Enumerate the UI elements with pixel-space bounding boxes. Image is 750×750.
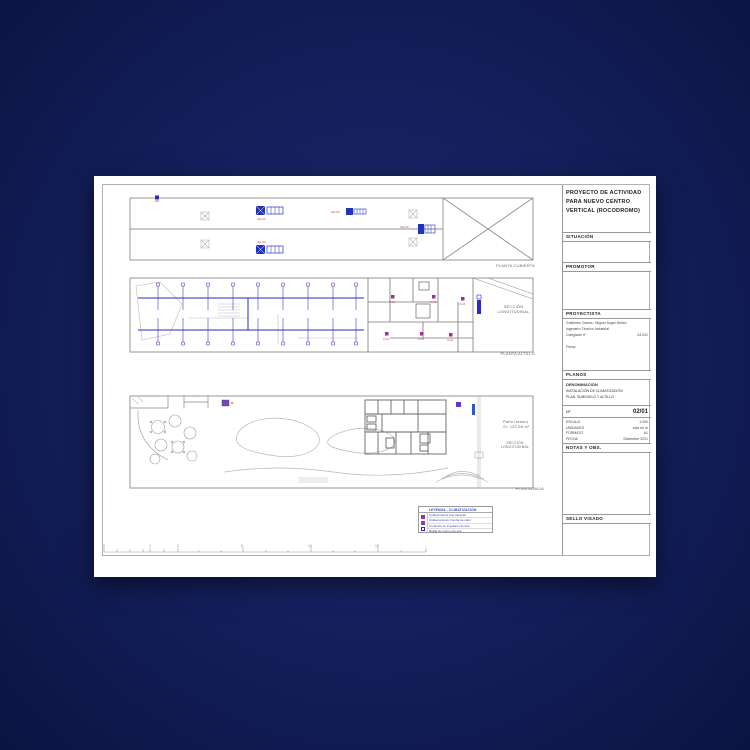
duct-network: [138, 283, 364, 345]
climate-unit: [222, 400, 233, 406]
fecha-label: FECHA: [566, 437, 578, 443]
spec-table: ESCALA 1:200 UNIDADES cota en m FORMATO …: [563, 418, 651, 444]
locker-rooms: [365, 400, 446, 454]
colegiado-value: 04.031: [637, 333, 648, 339]
cassette-unit-icon: [421, 515, 425, 519]
graphic-scale-bar: 0 1 2 5 10 15: [103, 544, 433, 556]
section-marker-label-2: SECCIÓNLONGITUDINAL: [490, 441, 540, 450]
scale-label: 5: [241, 544, 243, 548]
scale-label: 1: [149, 544, 151, 548]
denominacion-label: DENOMINACIÓN: [566, 381, 648, 388]
scale-label: 15: [375, 544, 379, 548]
sello-body: [563, 524, 651, 555]
exterior-unit-icon: [421, 521, 425, 525]
svg-text:UI-06: UI-06: [447, 339, 454, 342]
unit-label: UE-02: [331, 210, 340, 214]
section2-line2: LONGITUDINAL: [501, 445, 529, 449]
unit-label: UE-03: [400, 225, 409, 229]
section-marker-label: SECCIÓNLONGITUDINAL: [486, 304, 541, 314]
scale-label: 0: [103, 544, 105, 548]
firma-label: Firma:: [566, 345, 648, 351]
roof-outline: [130, 198, 533, 260]
cafe-area: [130, 396, 208, 464]
title-block: PROYECTO DE ACTIVIDAD PARA NUEVO CENTRO …: [562, 185, 651, 555]
mezzanine-outline: [130, 278, 533, 352]
numero-value: 02/01: [633, 409, 648, 415]
duct-icon: [421, 527, 425, 531]
scale-label: 10: [308, 544, 312, 548]
scale-label: 2: [177, 544, 179, 548]
roof-plan-caption: PLANTA CUBIERTA: [433, 263, 535, 268]
patio-line2: S= 122,56 m²: [503, 424, 530, 429]
climate-legend: LEYENDA - CLIMATIZACIÓN Unidad interior …: [418, 506, 493, 533]
sello-header: SELLO VISADO: [563, 515, 651, 524]
svg-text:UI-03: UI-03: [459, 303, 466, 306]
project-title: PROYECTO DE ACTIVIDAD PARA NUEVO CENTRO …: [563, 185, 651, 233]
riser-unit: [477, 295, 481, 314]
proyectista-header: PROYECTISTA: [563, 310, 651, 319]
unit-label: UE-01: [257, 217, 266, 221]
mezzanine-plan-drawing: UI-01 UI-02 UI-03 UI-04 UI-05 UI-06: [128, 274, 535, 356]
situacion-header: SITUACIÓN: [563, 233, 651, 242]
colegiado-label: Colegiado nº: [566, 333, 586, 339]
stair-sketch: [298, 478, 328, 482]
legend-symbol-column: [419, 513, 428, 533]
blue-equipment: [456, 402, 475, 415]
climbing-boulders: [224, 418, 488, 482]
svg-text:UI-04: UI-04: [383, 338, 390, 341]
plan-sheet: UE-01 UE-02 UE-03 UE-04: [94, 176, 656, 577]
section-line2: LONGITUDINAL: [498, 309, 530, 314]
legend-rows: Unidad interior tipo cassette Unidad ext…: [428, 513, 492, 533]
legend-row: Rejilla de retorno de aire: [428, 529, 492, 533]
promotor-header: PROMOTOR: [563, 263, 651, 272]
denominacion-body: DENOMINACIÓN INSTALACIÓN DE CLIMATIZACIÓ…: [563, 380, 651, 406]
ground-plan-drawing: [128, 394, 535, 491]
notas-body: [563, 453, 651, 515]
denominacion-line2: PLAN. SUBSUELO Y ALTILLO: [566, 394, 648, 400]
fecha-value: Diciembre 2021: [623, 437, 648, 443]
drawing-area: UE-01 UE-02 UE-03 UE-04: [103, 185, 562, 555]
unit-label: UE-04: [257, 240, 266, 244]
proyectista-body: Guillermo García / Miguel Ángel Núñez In…: [563, 319, 651, 371]
promotor-body: [563, 272, 651, 310]
ground-plan-caption: PLANTA BAJA: [438, 486, 544, 491]
roof-plan-drawing: UE-01 UE-02 UE-03 UE-04: [128, 195, 535, 267]
notas-header: NOTAS Y OBS.: [563, 444, 651, 453]
mezzanine-plan-caption: PLANTA ALTILLO: [433, 351, 535, 356]
svg-text:UI-05: UI-05: [418, 338, 425, 341]
mezzanine-sketch-lines: [136, 282, 358, 344]
patio-label: Patio traseroS= 122,56 m²: [503, 419, 548, 429]
north-mark-icon: [155, 196, 159, 202]
situacion-body: [563, 242, 651, 263]
sheet-number-row: Nº 02/01: [563, 406, 651, 418]
numero-label: Nº: [566, 409, 570, 414]
scale-bar-ticks: [103, 544, 433, 556]
spec-row: FECHA Diciembre 2021: [566, 437, 648, 443]
svg-text:UI-01: UI-01: [389, 301, 396, 304]
planos-header: PLANOS: [563, 371, 651, 380]
sheet-frame: UE-01 UE-02 UE-03 UE-04: [102, 184, 650, 556]
svg-text:UI-02: UI-02: [430, 301, 437, 304]
viewer-background: UE-01 UE-02 UE-03 UE-04: [0, 0, 750, 750]
rooftop-units: UE-01 UE-02 UE-03 UE-04: [256, 206, 435, 254]
